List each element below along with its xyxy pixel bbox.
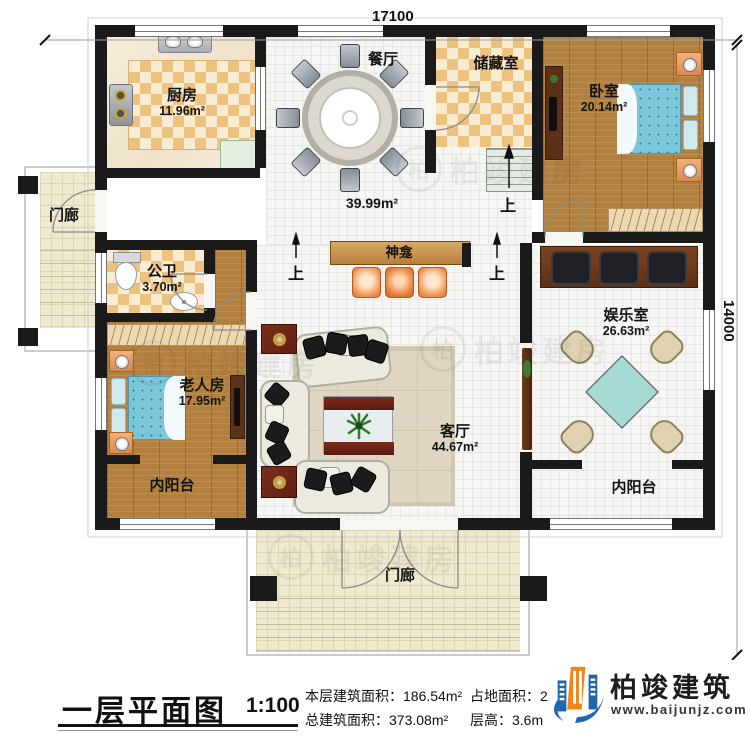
porch-left-steps (40, 250, 96, 328)
interior-window (255, 67, 266, 130)
entry-nook-floor (215, 250, 246, 330)
wall (95, 313, 215, 322)
door-opening (425, 85, 436, 130)
room-label-porch-left: 门廊 (49, 208, 79, 225)
room-label-shrine: 神龛 (386, 246, 413, 261)
wall (462, 243, 471, 267)
wall (246, 330, 257, 530)
shrine-cushion (352, 267, 381, 298)
elder-pillow (111, 378, 126, 405)
dining-chair (340, 168, 360, 192)
elder-tv-stand (230, 375, 245, 439)
brand-block: 柏竣建筑 www.baijunjz.com (548, 660, 748, 732)
room-label-bathroom: 公卫 3.70m² (142, 264, 182, 294)
staircase (486, 148, 533, 192)
porch-bottom-steps (256, 598, 520, 652)
bedroom-wardrobe (608, 208, 703, 232)
nightstand (676, 158, 702, 182)
window (550, 518, 672, 530)
window (120, 518, 215, 530)
wall (95, 240, 256, 250)
wall (532, 232, 545, 243)
wall (520, 243, 532, 343)
sofa-pillow (325, 332, 347, 354)
room-label-living: 客厅 44.67m² (432, 424, 479, 454)
storage-floor (436, 37, 532, 147)
shrine-cushion (385, 267, 414, 298)
brand-url: www.baijunjz.com (611, 702, 747, 717)
elder-tv (234, 388, 240, 426)
coffee-table (323, 396, 393, 454)
room-label-elder: 老人房 17.95m² (179, 378, 226, 408)
stat-floor-area: 本层建筑面积：186.54m² (305, 686, 462, 706)
dining-chair (276, 108, 300, 128)
floor-plan-canvas: 17100 14000 厨房 11.96m² 餐厅 39.99m² 储藏室 卧室… (0, 0, 750, 736)
window (703, 70, 715, 142)
wall (583, 232, 715, 243)
shrine-cushion (418, 267, 447, 298)
sink-basin (187, 36, 203, 48)
bedroom-desk (545, 66, 563, 160)
side-cabinet (261, 466, 297, 498)
sofa-pillow (304, 468, 327, 491)
room-label-kitchen: 厨房 11.96m² (159, 88, 205, 118)
burner (115, 90, 126, 101)
stat-storey-height: 层高：3.6m (470, 710, 543, 730)
porch-pillar (250, 576, 277, 601)
front-door-opening (340, 518, 458, 530)
dining-chair (400, 108, 424, 128)
dining-chair (340, 44, 360, 68)
desk-plant (550, 75, 558, 83)
room-label-balcony-left: 内阳台 (149, 478, 194, 495)
sofa-pillow (266, 406, 283, 423)
desk-monitor (549, 97, 557, 131)
bed-pillow (683, 86, 698, 116)
wall (213, 455, 256, 464)
table-plant (344, 411, 374, 441)
window (703, 310, 715, 390)
wall (255, 130, 266, 168)
step-up-label: 上 (288, 260, 304, 284)
room-label-entertainment: 娱乐室 26.63m² (603, 308, 650, 338)
dimension-height: 14000 (720, 300, 737, 342)
dimension-width: 17100 (372, 8, 414, 25)
porch-pillar (520, 576, 547, 601)
tv-cabinet (540, 246, 698, 288)
door-opening (204, 274, 215, 308)
side-cabinet (261, 324, 297, 354)
wall (520, 452, 532, 518)
room-label-dining: 餐厅 (368, 52, 398, 69)
hall-area-label: 39.99m² (346, 196, 398, 211)
window (95, 378, 107, 430)
plan-scale: 1:100 (246, 694, 300, 718)
door-opening (95, 190, 107, 232)
bath-sink (170, 292, 198, 311)
bed-pillow (683, 120, 698, 150)
kitchen-stove (109, 84, 133, 126)
title-underline-thin (58, 730, 298, 731)
brand-name: 柏竣建筑 (610, 666, 734, 705)
wall (255, 37, 266, 67)
elder-nightstand (109, 350, 134, 372)
room-label-storage: 储藏室 (473, 56, 518, 73)
burner (115, 108, 126, 119)
window (95, 253, 107, 303)
room-label-porch-bottom: 门廊 (385, 568, 415, 585)
door-opening (545, 232, 583, 243)
stat-total-area: 总建筑面积：373.08m² (305, 710, 448, 730)
nightstand (676, 52, 702, 76)
wall (95, 455, 140, 464)
door-plant (523, 360, 531, 378)
wall (204, 240, 215, 274)
wall (672, 460, 703, 469)
window (587, 25, 670, 37)
porch-pillar (18, 176, 38, 194)
elder-closet (107, 324, 246, 346)
porch-pillar (18, 328, 38, 346)
window (298, 25, 383, 37)
title-underline (58, 724, 298, 727)
brand-logo-icon (548, 662, 606, 726)
room-label-balcony-right: 内阳台 (611, 480, 656, 497)
stairs-up-label: 上 (500, 192, 516, 216)
elder-pillow (111, 408, 126, 435)
dining-table-center (342, 110, 358, 126)
room-label-bedroom: 卧室 20.14m² (581, 84, 628, 114)
step-up-label: 上 (489, 260, 505, 284)
sink-basin (165, 36, 181, 48)
wall (532, 25, 543, 200)
wall (95, 168, 260, 178)
door-opening (246, 292, 257, 330)
washing-machine (109, 432, 133, 454)
window (135, 25, 223, 37)
wall (532, 460, 582, 469)
wall (246, 240, 257, 292)
